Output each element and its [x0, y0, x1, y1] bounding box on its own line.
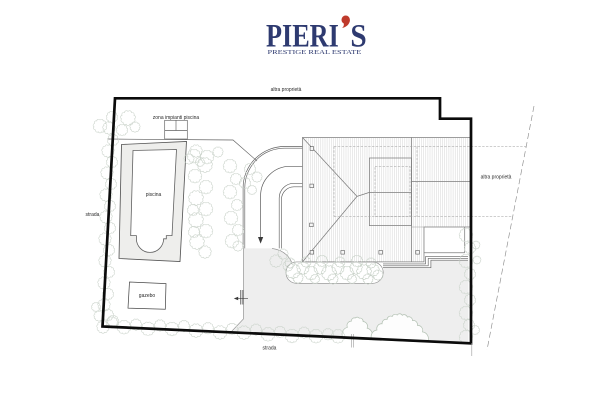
svg-text:strada: strada	[263, 346, 277, 352]
svg-text:S: S	[350, 19, 366, 55]
svg-text:altra proprietà: altra proprietà	[481, 175, 512, 181]
svg-text:piscina: piscina	[146, 192, 162, 198]
svg-text:strada: strada	[86, 212, 100, 218]
svg-text:altra proprietà: altra proprietà	[271, 87, 302, 93]
svg-text:PIERI: PIERI	[266, 19, 339, 55]
svg-text:zona impianti piscina: zona impianti piscina	[153, 115, 200, 121]
svg-text:gazebo: gazebo	[139, 293, 156, 299]
svg-text:PRESTIGE REAL ESTATE: PRESTIGE REAL ESTATE	[268, 50, 362, 56]
